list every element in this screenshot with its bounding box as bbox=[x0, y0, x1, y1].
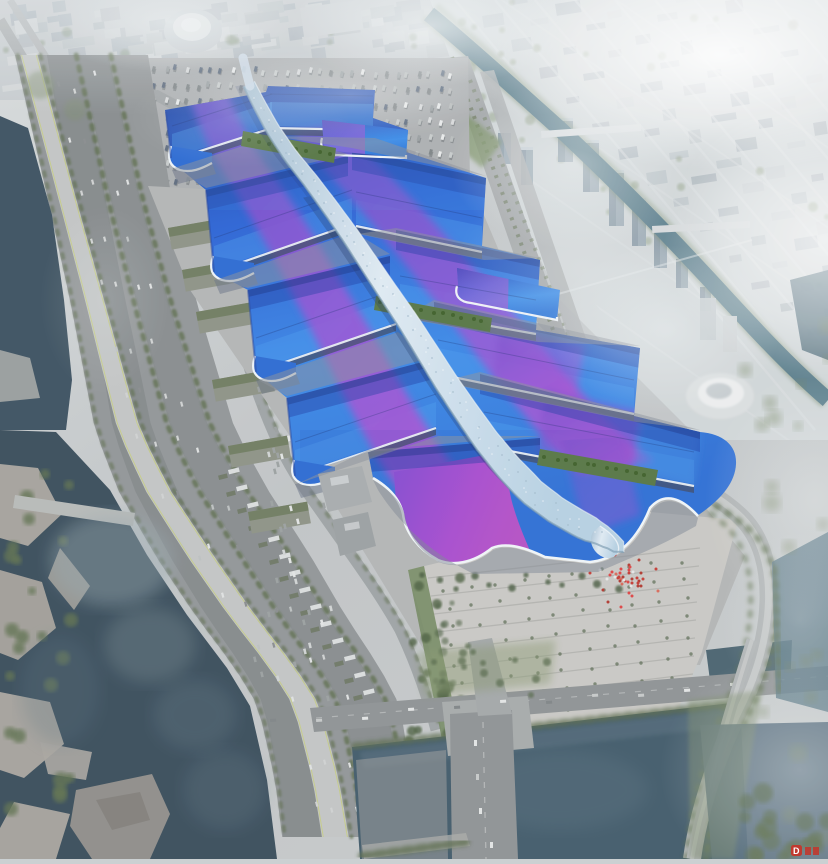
svg-text:D: D bbox=[793, 846, 800, 856]
